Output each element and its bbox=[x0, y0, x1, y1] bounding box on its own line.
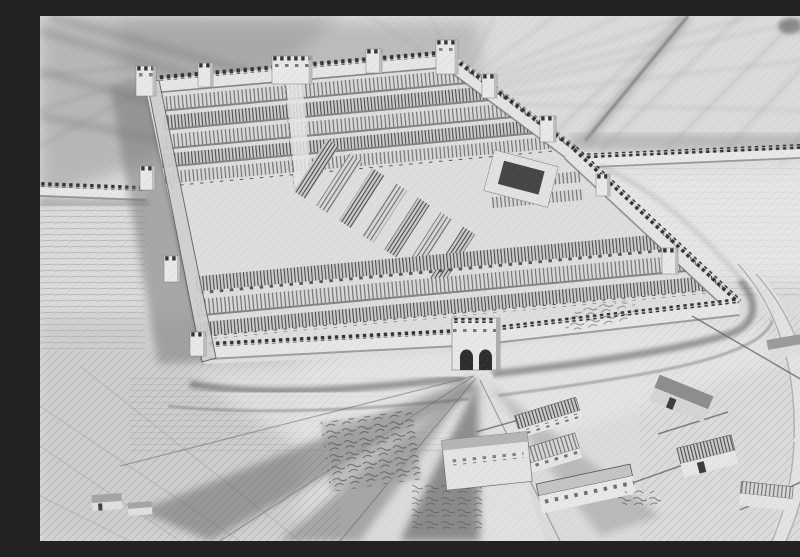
drawing-canvas: Bird's-eye reconstruction drawing of a R… bbox=[40, 16, 800, 541]
engraving-roman-fort: Bird's-eye reconstruction drawing of a R… bbox=[40, 16, 800, 541]
overall-hatch-tint bbox=[40, 16, 800, 541]
